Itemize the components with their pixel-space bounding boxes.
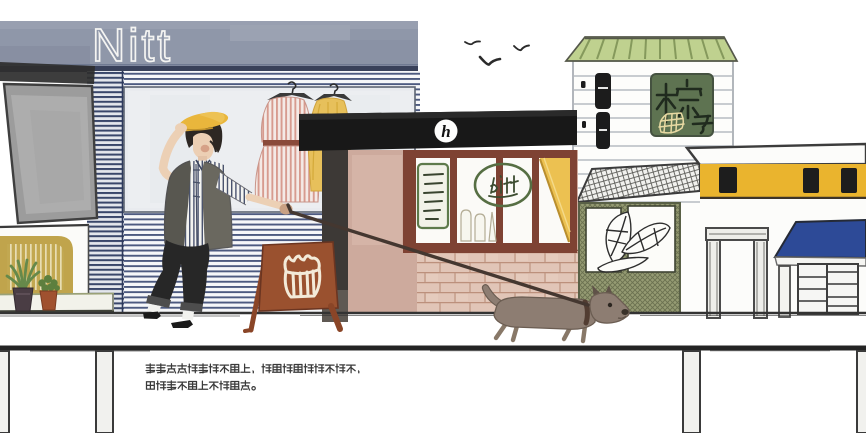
svg-text:h: h [441,122,450,141]
svg-text:Nitt: Nitt [92,19,173,71]
